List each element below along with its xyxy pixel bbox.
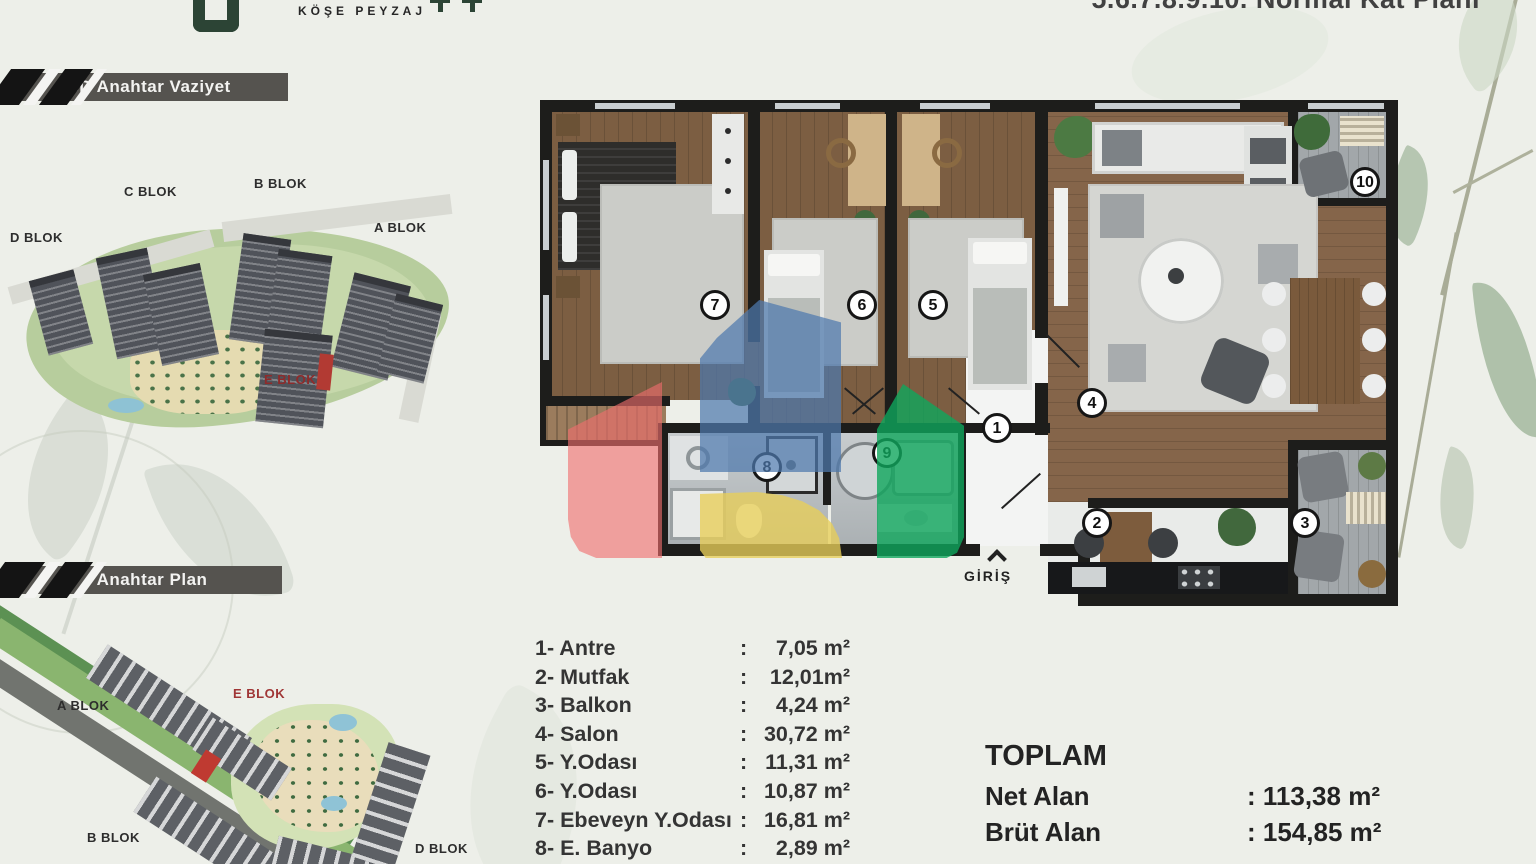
room-value: 2,89 m² [754, 836, 850, 861]
totals: TOPLAM Net Alan : 113,38 m² Brüt Alan : … [985, 740, 1425, 853]
total-row: Brüt Alan : 154,85 m² [985, 817, 1425, 853]
totals-title: TOPLAM [985, 740, 1425, 773]
total-label: Brüt Alan [985, 817, 1247, 848]
wall [1035, 100, 1048, 338]
plant [1358, 560, 1386, 588]
logo-mark-glyph [430, 0, 450, 12]
key-plan-map: A BLOK E BLOK B BLOK D BLOK [25, 612, 483, 864]
room-value: 7,05 m² [754, 636, 850, 661]
room-colon: : [740, 750, 754, 775]
block-label-d: D BLOK [415, 841, 468, 856]
room-label: 2- Mutfak [535, 665, 740, 690]
total-value: : 113,38 m² [1247, 781, 1425, 812]
wardrobe [712, 114, 744, 214]
block-label-e: E BLOK [264, 372, 316, 387]
tv-unit [1054, 188, 1068, 306]
window [543, 160, 549, 250]
page-title: 5.6.7.8.9.10. Normal Kat Planı [1091, 0, 1480, 15]
room-label: 7- Ebeveyn Y.Odası [535, 808, 740, 833]
room-number-badge: 4 [1077, 388, 1107, 418]
sink [1072, 567, 1106, 587]
room-colon: : [740, 693, 754, 718]
wall [540, 396, 546, 446]
dining-table [1290, 278, 1360, 404]
block-label-a: A BLOK [57, 698, 109, 713]
room-row: 7- Ebeveyn Y.Odası : 16,81 m² [535, 808, 865, 837]
room-colon: : [740, 665, 754, 690]
room-row: 3- Balkon : 4,24 m² [535, 693, 865, 722]
chair [932, 138, 962, 168]
site-3d-map: D BLOK C BLOK B BLOK A BLOK E BLOK [12, 192, 467, 437]
room-colon: : [740, 722, 754, 747]
room-row: 2- Mutfak : 12,01m² [535, 665, 865, 694]
entrance-label: GİRİŞ [964, 568, 1012, 584]
room-value: 30,72 m² [754, 722, 850, 747]
room-label: 1- Antre [535, 636, 740, 661]
balcony-mat [1346, 492, 1386, 524]
bed [968, 238, 1032, 390]
logo-mark [193, 0, 239, 32]
plant [1218, 508, 1256, 546]
block-label-b: B BLOK [87, 830, 140, 845]
banner-3d-site: 3D Anahtar Vaziyet [12, 73, 288, 101]
brochure-page: KÖŞE PEYZAJ 5.6.7.8.9.10. Normal Kat Pla… [0, 0, 1536, 864]
room-row: 4- Salon : 30,72 m² [535, 722, 865, 751]
floor-plan: 7 6 5 8 9 1 4 2 3 10 GİRİŞ [540, 100, 1398, 618]
room-row: 8- E. Banyo : 2,89 m² [535, 836, 865, 864]
lounge-chair [1296, 450, 1349, 503]
nightstand [556, 276, 580, 298]
window [1308, 103, 1384, 109]
block-label-b: B BLOK [254, 176, 307, 191]
room-number-badge: 2 [1082, 508, 1112, 538]
room-row: 1- Antre : 7,05 m² [535, 636, 865, 665]
room-row: 6- Y.Odası : 10,87 m² [535, 779, 865, 808]
wall [540, 100, 552, 406]
chair [1262, 374, 1286, 398]
room-colon: : [740, 636, 754, 661]
wall [1288, 440, 1398, 450]
block-label-d: D BLOK [10, 230, 63, 245]
room-value: 4,24 m² [754, 693, 850, 718]
stove [1178, 566, 1220, 589]
chair [1362, 328, 1386, 352]
banner-key-plan: Anahtar Plan [22, 566, 282, 594]
plant [1054, 116, 1096, 158]
block-label-a: A BLOK [374, 220, 426, 235]
room-number-badge: 1 [982, 413, 1012, 443]
leaf-decoration [1388, 0, 1536, 590]
nightstand [556, 114, 580, 136]
room-number-badge: 3 [1290, 508, 1320, 538]
room-label: 8- E. Banyo [535, 836, 740, 861]
chair [1148, 528, 1178, 558]
block-label-c: C BLOK [124, 184, 177, 199]
coffee-table [1138, 238, 1224, 324]
block-label-e: E BLOK [233, 686, 285, 701]
banner-key-plan-label: Anahtar Plan [97, 570, 208, 590]
room-label: 5- Y.Odası [535, 750, 740, 775]
window [920, 103, 990, 109]
room-colon: : [740, 836, 754, 861]
room-number-badge: 10 [1350, 167, 1380, 197]
room-label: 6- Y.Odası [535, 779, 740, 804]
room-value: 12,01m² [754, 665, 850, 690]
logo-mark-glyph [462, 0, 482, 12]
room-number-badge: 6 [847, 290, 877, 320]
chair [1262, 282, 1286, 306]
plant [1358, 452, 1386, 480]
kitchen-counter [1048, 562, 1288, 594]
window [775, 103, 840, 109]
chair [1262, 328, 1286, 352]
total-label: Net Alan [985, 781, 1247, 812]
room-label: 4- Salon [535, 722, 740, 747]
room-value: 16,81 m² [754, 808, 850, 833]
room-number-badge: 7 [700, 290, 730, 320]
pillow [562, 212, 577, 262]
chair [1362, 374, 1386, 398]
brand-subtitle: KÖŞE PEYZAJ [298, 4, 426, 18]
chair [1362, 282, 1386, 306]
wall [885, 100, 897, 433]
pillow [562, 150, 577, 200]
room-row: 5- Y.Odası : 11,31 m² [535, 750, 865, 779]
window [1095, 103, 1240, 109]
window [595, 103, 675, 109]
wall [1078, 594, 1398, 606]
room-colon: : [740, 808, 754, 833]
room-number-badge: 5 [918, 290, 948, 320]
total-value: : 154,85 m² [1247, 817, 1425, 848]
room-list: 1- Antre : 7,05 m² 2- Mutfak : 12,01m² 3… [535, 636, 865, 864]
window [543, 295, 549, 360]
wall [1088, 498, 1292, 508]
room-label: 3- Balkon [535, 693, 740, 718]
room-colon: : [740, 779, 754, 804]
room-value: 10,87 m² [754, 779, 850, 804]
entrance-arrow-icon [987, 549, 1007, 569]
wall [1386, 100, 1398, 606]
total-row: Net Alan : 113,38 m² [985, 781, 1425, 817]
room-floor-salon [1048, 442, 1288, 502]
chair [826, 138, 856, 168]
room-value: 11,31 m² [754, 750, 850, 775]
balcony-mat [1340, 116, 1384, 146]
